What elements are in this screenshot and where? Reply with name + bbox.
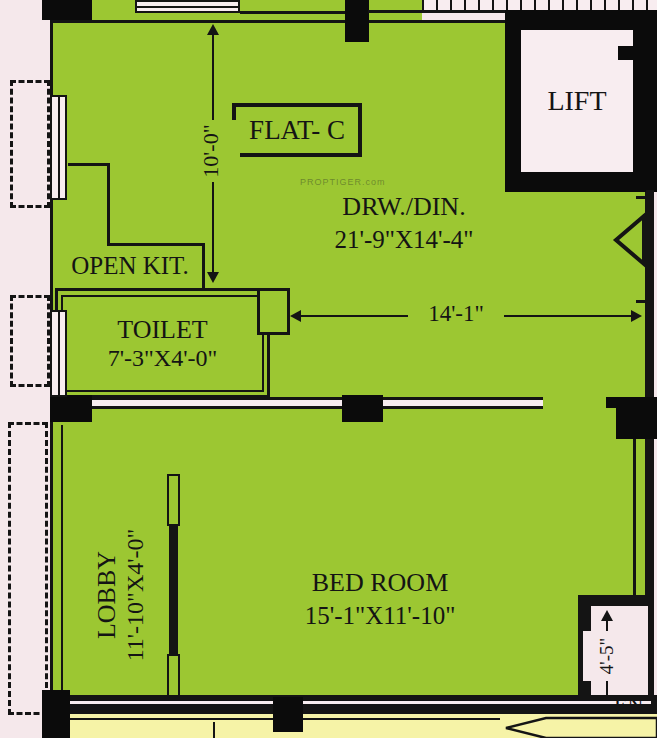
column-block-top-middle: [345, 0, 369, 42]
column-block-mid-left: [50, 395, 92, 422]
dimension-label-14-1: 14'-1": [408, 301, 504, 329]
lobby-label: LOBBY: [92, 529, 122, 662]
bedroom-right-wall: [633, 439, 636, 597]
corridor-strip: [70, 712, 657, 738]
bedroom-size-label: 15'-1"X11'-10": [280, 602, 480, 631]
watermark-label: PROPTIGER.com: [300, 177, 386, 187]
entry-label: EN: [614, 692, 657, 717]
entry-dim-arrow-up-icon: [601, 610, 613, 621]
window-symbol-top: [50, 95, 67, 200]
top-window-symbol: [135, 0, 240, 13]
flat-name-label: FLAT- C: [249, 115, 345, 146]
toilet-label: TOILET: [117, 315, 208, 345]
lift-cabin: LIFT: [521, 30, 633, 172]
drw-din-size-label: 21'-9"X14'-4": [304, 226, 504, 255]
toilet-room-inner-wall: TOILET 7'-3"X4'-0": [61, 295, 264, 392]
balcony-projection-dashed-box-top: [10, 80, 50, 208]
dimension-label-10-0: 10'-0": [182, 120, 240, 182]
dim-arrow-left-icon: [290, 310, 301, 322]
open-kitchen-label: OPEN KIT.: [57, 252, 203, 281]
dimension-label-4-5: 4'-5": [583, 631, 631, 681]
drw-din-label: DRW./DIN.: [304, 192, 504, 222]
toilet-size-label: 7'-3"X4'-0": [108, 345, 218, 372]
lift-wall-notch: [618, 46, 633, 60]
lobby-size-label: 11'-10"X4'-0": [122, 529, 149, 662]
column-block-mid-center: [342, 395, 383, 422]
dim-arrow-right-icon: [631, 310, 642, 322]
door-jamb-bottom: [636, 300, 648, 303]
bottom-wall-inner-line: [48, 701, 651, 704]
lift-label: LIFT: [547, 85, 606, 117]
column-block-bottom-left: [42, 690, 70, 738]
floor-plan-canvas: LIFT FLAT- C PROPTIGER.com 10'-0" DRW./D…: [0, 0, 657, 738]
kitchen-partition-line-2: [107, 163, 110, 245]
bedroom-label: BED ROOM: [280, 568, 480, 598]
column-block-mid-right: [616, 397, 657, 439]
column-block-top-left: [42, 0, 92, 20]
dim-arrow-up-icon: [207, 24, 219, 35]
dim-arrow-down-icon: [207, 272, 219, 283]
balcony-projection-dashed-box-middle: [10, 295, 50, 387]
bottom-wall-band: [46, 695, 657, 712]
top-wall-line-left: [240, 11, 345, 14]
lobby-left-wall: [50, 425, 63, 712]
toilet-step-wall: [257, 288, 290, 335]
entry-door-triangle-icon: [610, 210, 650, 270]
corridor-arrow-icon: [500, 714, 657, 738]
door-jamb-top: [636, 196, 648, 199]
corridor-jamb: [213, 722, 215, 738]
flat-name-box: FLAT- C: [232, 103, 362, 157]
kitchen-partition-line-1: [68, 163, 110, 166]
internal-wall-band: [92, 397, 543, 409]
kitchen-partition-line-3: [107, 243, 205, 246]
window-symbol-middle: [50, 310, 67, 397]
column-block-bottom-middle: [273, 697, 303, 732]
